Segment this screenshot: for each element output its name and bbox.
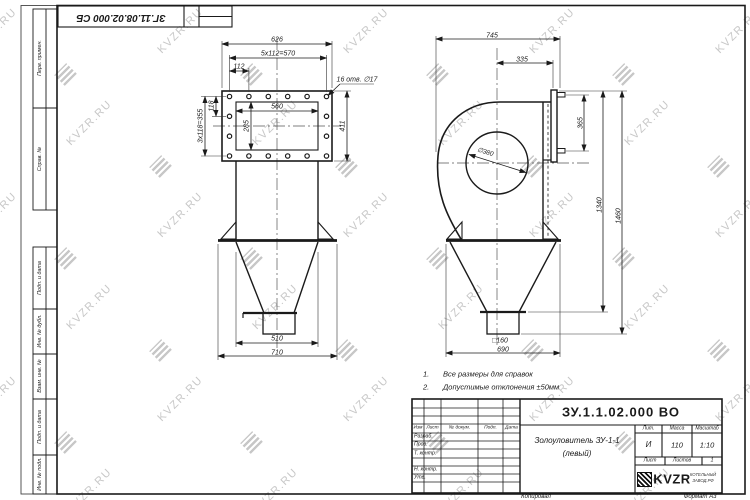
right-view-centerlines (437, 48, 592, 345)
kvzr-logo-text: KVZR (653, 472, 690, 485)
dim-285: 285 (244, 120, 251, 132)
dim-365: 365 (577, 117, 584, 129)
left-view-centerlines (213, 38, 341, 348)
side-label-perv-primen: Перв. примен. (37, 40, 43, 76)
footer-format: Формат А3 (684, 494, 717, 500)
top-stamp-code: ЗГ.11.08.02.000 СБ (76, 12, 165, 22)
dim-row-span: 3x118=355 (198, 109, 205, 143)
inner-frame (57, 6, 745, 495)
right-view-geometry (438, 90, 565, 334)
side-label-inv-podl: Инв. № подл. (37, 457, 43, 490)
dim-411: 411 (340, 120, 347, 131)
dim-1340: 1340 (596, 197, 603, 213)
col-dokum: № докум. (449, 426, 470, 431)
row-utv: Утв. (414, 475, 426, 480)
logo-subtext-1: КОТЕЛЬНЫЙ (690, 473, 716, 477)
scale-label: Масштаб (695, 427, 718, 432)
footer-kopiroval: Копировал (521, 494, 551, 500)
drawing-sheet: KVZR.RUKVZR.RUKVZR.RUKVZR.RUKVZR.RUKVZR.… (0, 0, 750, 500)
outer-trim-line (21, 6, 745, 495)
dim-690: 690 (497, 346, 509, 353)
sheet-label: Лист (644, 459, 657, 464)
dim-745: 745 (486, 32, 498, 39)
dim-626: 626 (271, 37, 283, 44)
mass-label: Масса (670, 427, 685, 432)
holes-note: 16 отв. ∅17 (337, 77, 378, 84)
dim-1460: 1460 (615, 208, 622, 224)
part-name-line1: Золоуловитель ЗУ-1-1 (534, 437, 619, 445)
mass-value: 110 (671, 441, 683, 449)
col-izm: Изм (414, 426, 423, 431)
row-n-kontr: Н. контр. (414, 467, 437, 472)
dim-510: 510 (271, 336, 283, 343)
note-1-text: Все размеры для справок (443, 370, 533, 378)
col-data: Дата (505, 426, 518, 431)
note-2-text: Допустимые отклонения ±50мм (443, 383, 559, 391)
side-label-sprav-no: Справ. № (37, 147, 43, 172)
lit-value: И (646, 441, 652, 449)
sheets-value: 1 (710, 458, 713, 464)
sheets-label: Листов (673, 459, 691, 464)
part-name-line2: (левый) (563, 450, 592, 458)
col-podp: Подп. (484, 426, 497, 431)
lit-label: Лит. (643, 427, 655, 432)
holes-leader-line (328, 84, 340, 96)
note-1-num: 1. (423, 370, 429, 378)
side-label-inv-dubl: Инв. № дубл. (37, 314, 43, 347)
row-t-kontr: Т. контр. (414, 451, 436, 456)
kvzr-logo-icon (637, 472, 652, 487)
side-label-vzam-inv: Взам. инв. № (37, 359, 43, 392)
doc-number: ЗУ.1.1.02.000 ВО (562, 406, 680, 419)
dim-112: 112 (233, 64, 244, 71)
side-label-podp-data-2: Подп. и дата (37, 410, 43, 444)
logo-subtext-2: ЗАВОД.РФ (692, 479, 713, 483)
dim-square-160: □160 (492, 338, 508, 345)
row-razrab: Разраб. (414, 434, 433, 439)
dim-710: 710 (271, 349, 283, 356)
scale-value: 1:10 (700, 441, 715, 449)
dim-bolt-span: 5x112=570 (261, 51, 295, 58)
right-view-dimension-lines (436, 39, 622, 353)
note-2-num: 2. (423, 383, 429, 391)
dim-560: 560 (271, 104, 283, 111)
engineering-drawing-svg (0, 0, 750, 500)
dim-335: 335 (516, 56, 528, 63)
row-prov: Пров. (414, 442, 428, 447)
col-list: Лист (426, 426, 438, 431)
side-label-podp-data-1: Подп. и дата (37, 261, 43, 295)
dim-118: 118 (209, 100, 216, 111)
